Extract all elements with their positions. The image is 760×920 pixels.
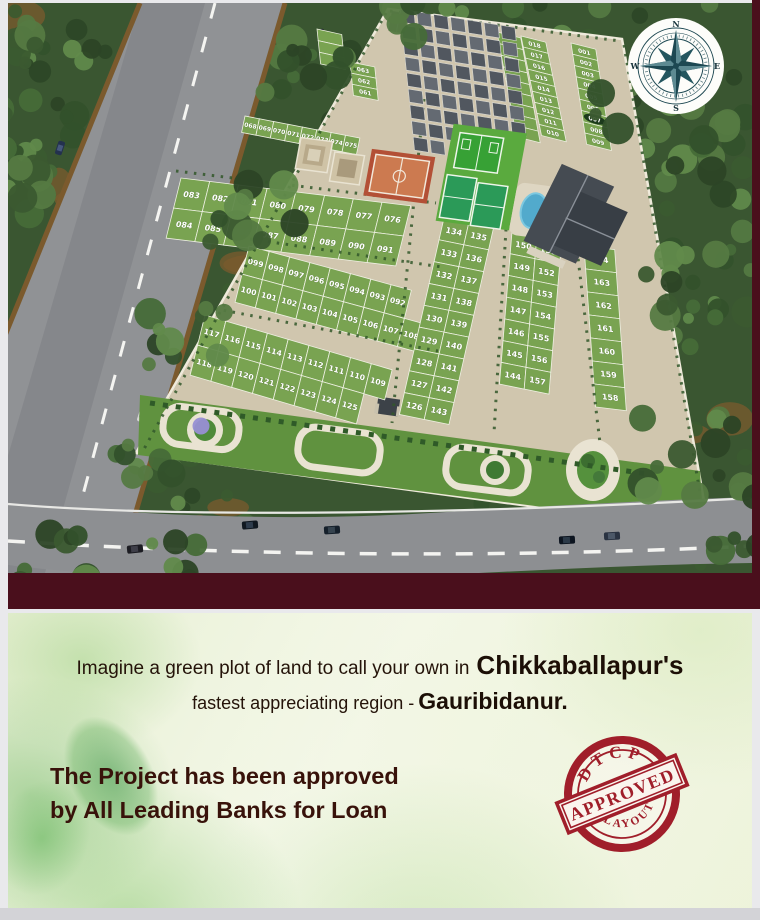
car <box>242 520 259 529</box>
dtcp-stamp: DTCP LAYOUT APPROVED <box>536 708 708 880</box>
divider-band <box>8 573 752 609</box>
compass-rose-icon: N E S W <box>628 18 724 114</box>
car <box>604 532 620 541</box>
promo-section: Imagine a green plot of land to call you… <box>8 613 752 908</box>
compass-n: N <box>672 19 679 29</box>
headline-text: Imagine a green plot of land to call you… <box>77 658 470 679</box>
compass-e: E <box>714 61 720 71</box>
car <box>127 544 144 554</box>
headline: Imagine a green plot of land to call you… <box>20 650 740 681</box>
flowering-tree <box>193 418 210 435</box>
compass-s: S <box>673 103 679 113</box>
approval-text: The Project has been approved by All Lea… <box>50 759 399 827</box>
pergola-court <box>295 138 332 173</box>
car <box>324 525 341 534</box>
basketball-court <box>454 133 504 174</box>
entrance-gate <box>374 396 402 416</box>
right-border-accent <box>752 0 760 609</box>
approval-line-2: by All Leading Banks for Loan <box>50 793 399 827</box>
pergola-court <box>329 152 364 185</box>
car <box>559 536 575 545</box>
bottom-strip <box>0 908 760 920</box>
compass-w: W <box>630 61 641 71</box>
approval-line-1: The Project has been approved <box>50 759 399 793</box>
headline-highlight: Chikkaballapur's <box>476 650 683 680</box>
site-plan-svg: 0180170160150140130120110100010020030040… <box>8 3 752 573</box>
subheadline-text: fastest appreciating region - <box>192 693 414 713</box>
aerial-render: 0180170160150140130120110100010020030040… <box>8 3 752 573</box>
flyer-page: 0180170160150140130120110100010020030040… <box>0 0 760 920</box>
orange-court <box>363 149 435 204</box>
